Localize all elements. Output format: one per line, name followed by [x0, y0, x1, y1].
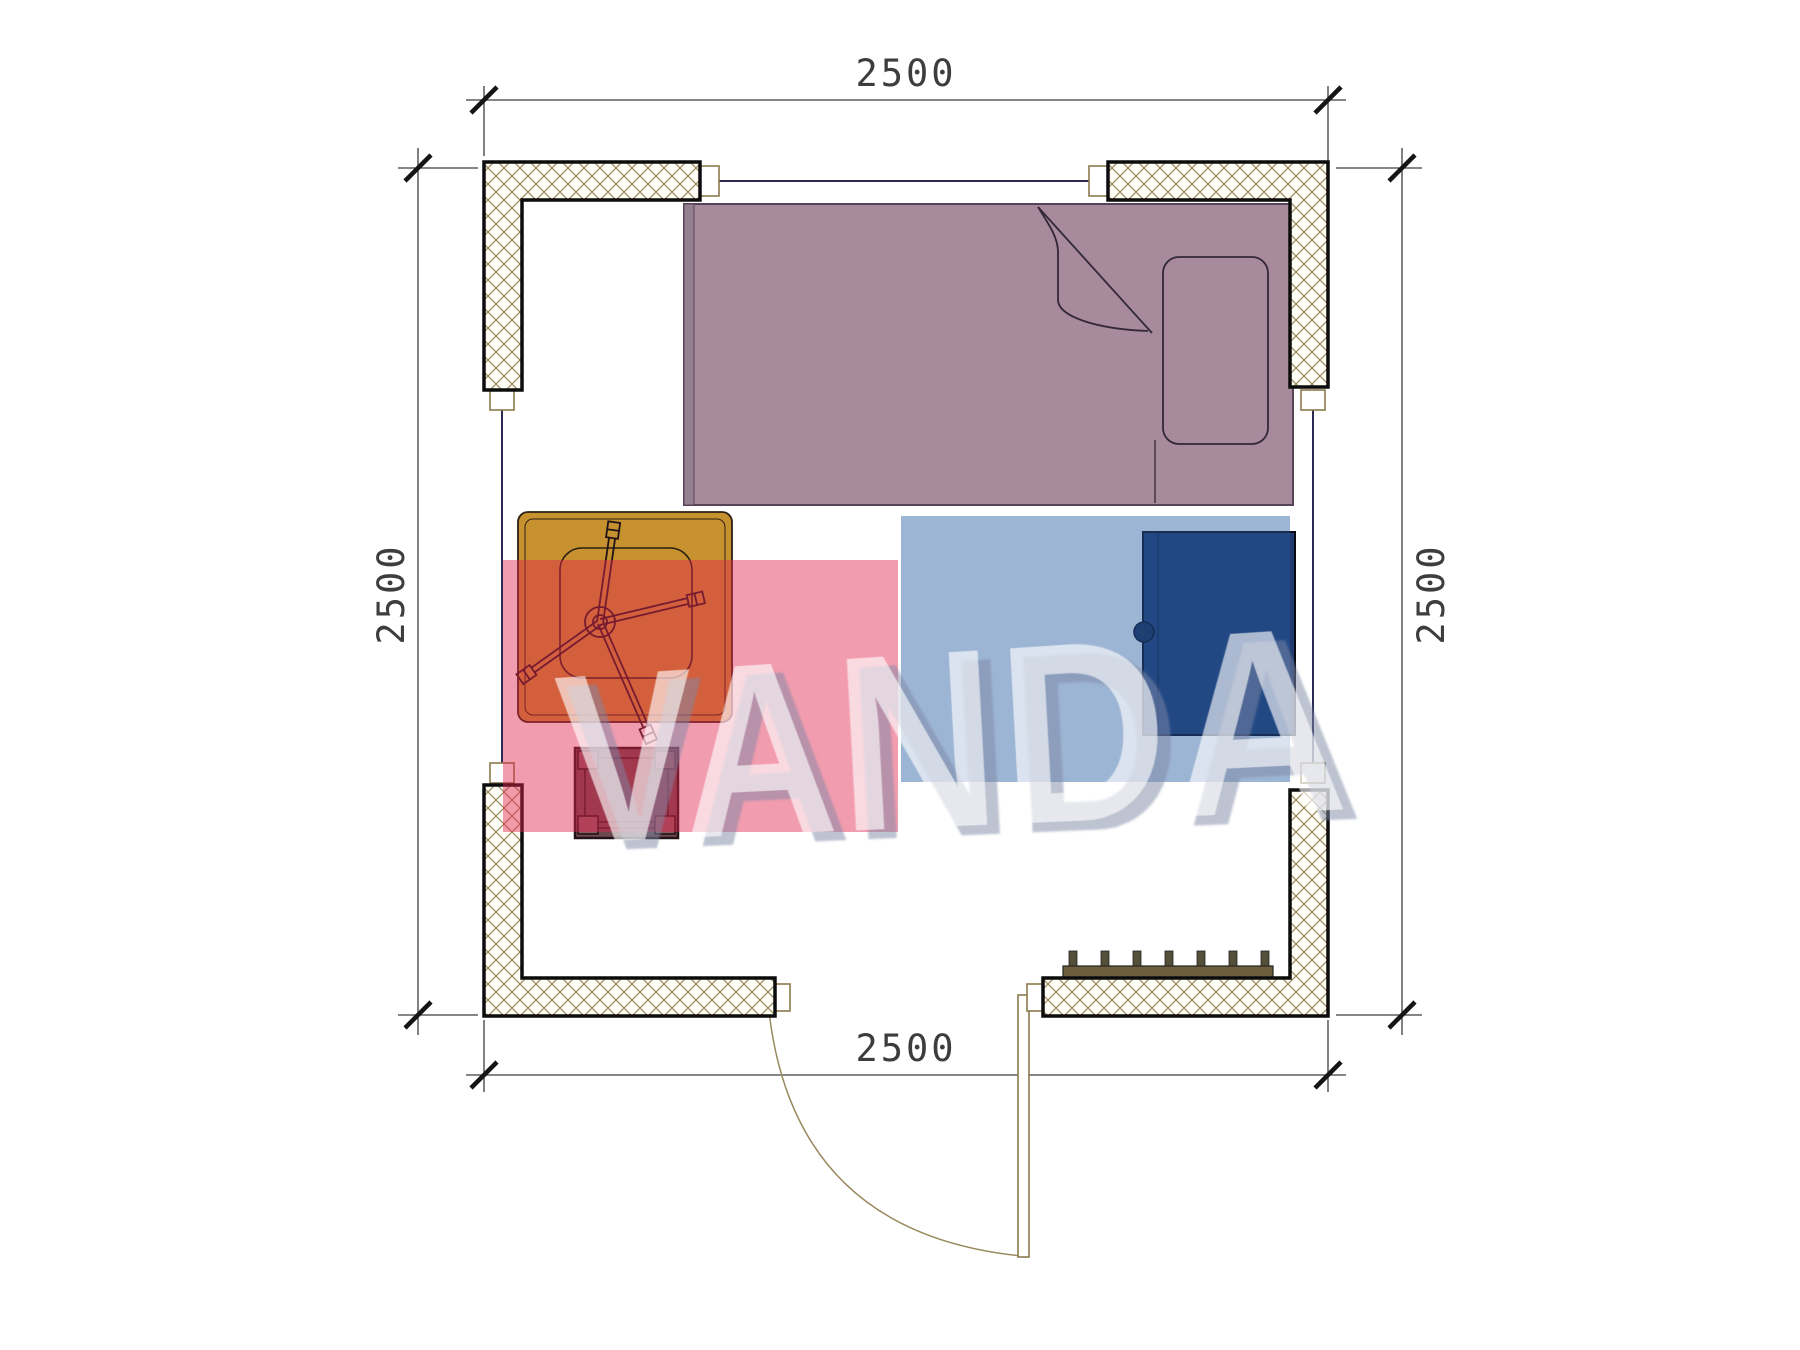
dimension-right-value: 2500 — [1410, 543, 1453, 644]
radiator-fin — [1069, 951, 1077, 966]
radiator-fin — [1229, 951, 1237, 966]
pillow — [1163, 257, 1268, 444]
single-bed — [684, 204, 1293, 505]
dimension-left-value: 2500 — [370, 543, 413, 644]
radiator — [1063, 951, 1273, 980]
radiator-fin — [1261, 951, 1269, 966]
floor-plan-page: 2500 2500 2500 2500 — [0, 0, 1800, 1350]
watermark-blue-block — [901, 516, 1290, 782]
dimension-bottom-value: 2500 — [855, 1027, 956, 1070]
wall-bottom-right — [1043, 790, 1328, 1016]
door-leaf — [1018, 995, 1029, 1257]
floor-plan-drawing: 2500 2500 2500 2500 — [0, 0, 1800, 1350]
window-frame-connector — [1089, 166, 1109, 196]
door-jamb — [1027, 984, 1043, 1011]
watermark-pink-block — [503, 560, 898, 832]
radiator-fin — [1133, 951, 1141, 966]
dimension-left: 2500 — [370, 148, 478, 1035]
dimension-bottom: 2500 — [466, 1020, 1346, 1092]
window-frame-connector — [699, 166, 719, 196]
entrance-door — [768, 984, 1043, 1257]
dimension-right: 2500 — [1336, 148, 1453, 1035]
bed-side-rail — [684, 204, 694, 505]
window-frame-connector — [490, 390, 514, 410]
radiator-fin — [1197, 951, 1205, 966]
radiator-fin — [1101, 951, 1109, 966]
radiator-fin — [1165, 951, 1173, 966]
window-frame-connector — [1301, 763, 1325, 783]
watermark-blocks — [503, 516, 1290, 832]
window-frame-connector — [1301, 390, 1325, 410]
dimension-top: 2500 — [466, 52, 1346, 162]
dimension-top-value: 2500 — [855, 52, 956, 95]
wall-top-left — [484, 162, 700, 390]
